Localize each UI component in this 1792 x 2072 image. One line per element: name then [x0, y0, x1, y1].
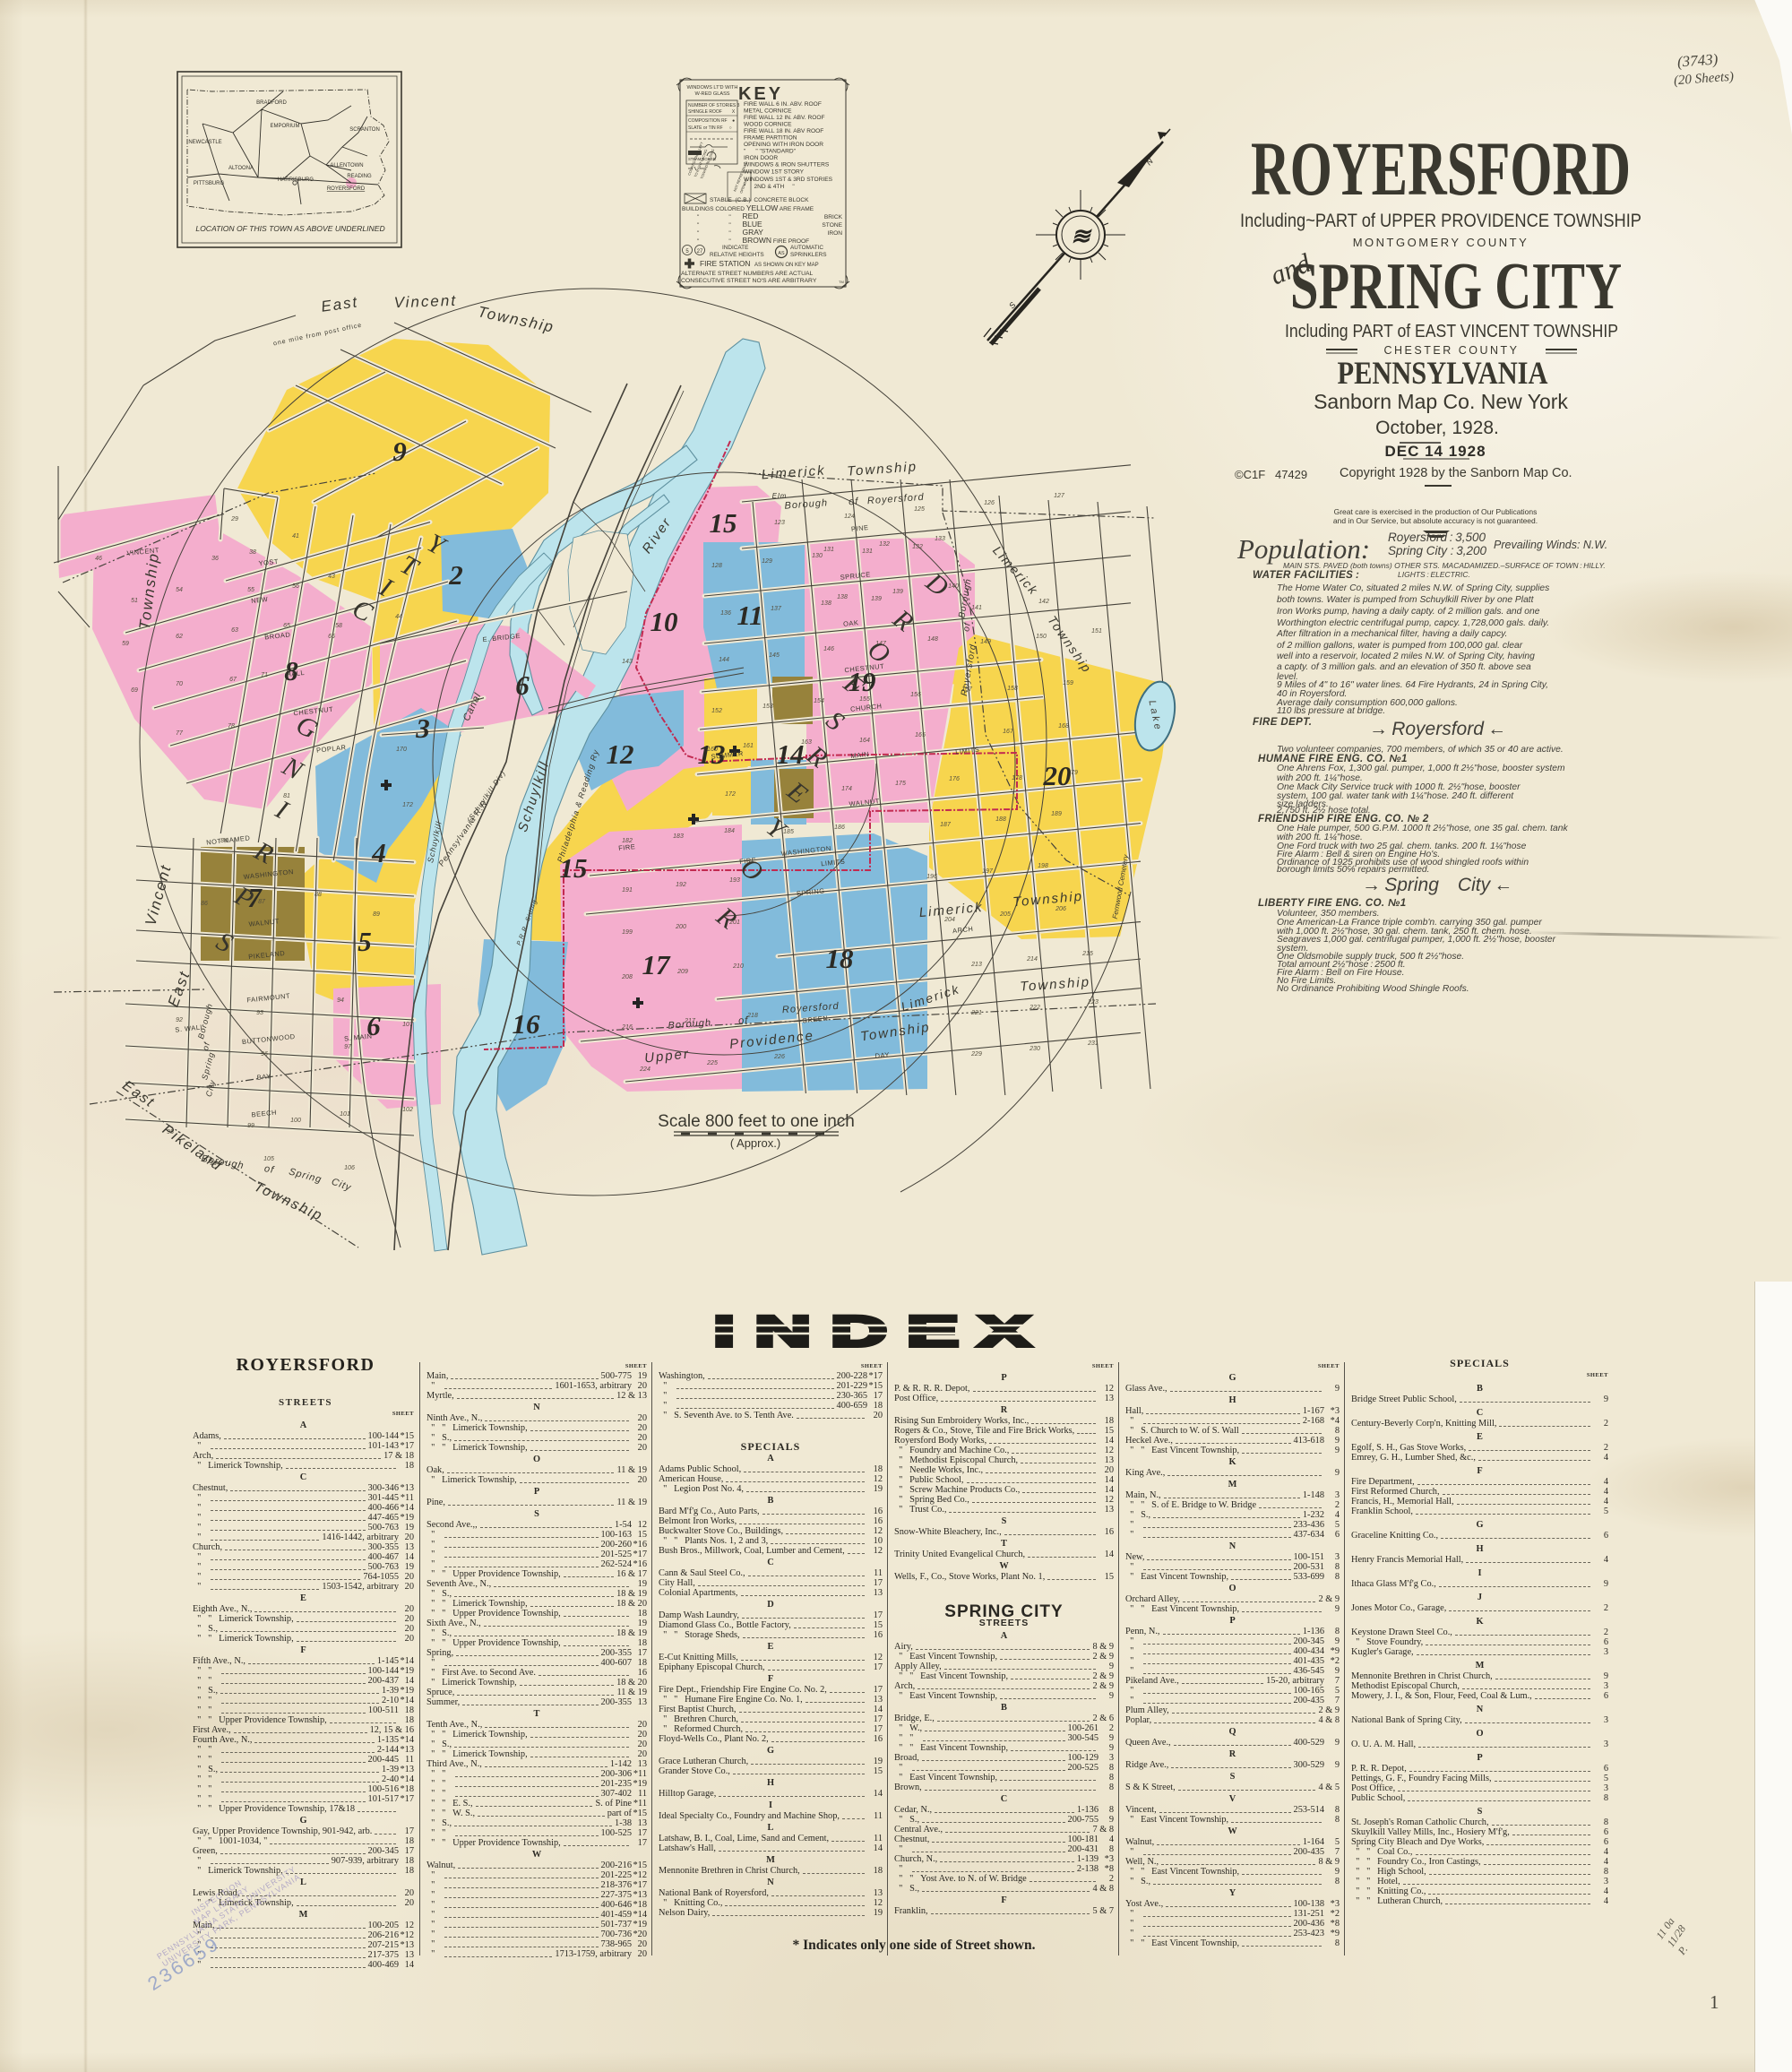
svg-text:of: of	[263, 1163, 275, 1176]
svg-text:63: 63	[231, 627, 238, 634]
svg-text:185: 185	[783, 829, 794, 835]
svg-text:FIRE WALL 12 IN. ABV. ROOF: FIRE WALL 12 IN. ABV. ROOF	[744, 115, 825, 121]
svg-text:of: of	[738, 1015, 749, 1027]
svg-text:44: 44	[395, 614, 402, 620]
svg-text:FIRE WALL 18 IN. ABV ROOF: FIRE WALL 18 IN. ABV ROOF	[744, 128, 823, 134]
svg-text:2: 2	[448, 559, 463, 591]
svg-text:159: 159	[1063, 680, 1073, 686]
svg-text:215: 215	[1081, 951, 1093, 957]
svg-text:66: 66	[328, 634, 335, 640]
svg-text:199: 199	[622, 929, 633, 936]
svg-text:89: 89	[373, 911, 380, 918]
svg-text:131: 131	[862, 548, 873, 555]
svg-text:HARRISBURG: HARRISBURG	[278, 177, 314, 183]
svg-text:51: 51	[131, 598, 138, 604]
svg-text:Limerick: Limerick	[761, 463, 826, 483]
svg-text:223: 223	[1087, 999, 1098, 1006]
svg-text:206: 206	[1055, 906, 1066, 912]
svg-text:15: 15	[710, 507, 737, 539]
svg-text:( Approx.): ( Approx.)	[730, 1136, 780, 1150]
svg-text:230: 230	[1029, 1046, 1040, 1052]
svg-text:69: 69	[131, 687, 138, 694]
svg-text:AUTOMATIC: AUTOMATIC	[790, 245, 823, 251]
svg-text:IRON DOOR: IRON DOOR	[744, 155, 778, 161]
svg-text:and in Our Service, but absolu: and in Our Service, but absolute accurac…	[1333, 516, 1538, 525]
svg-text:WINDOW 1ST STORY: WINDOW 1ST STORY	[744, 169, 805, 176]
svg-text:of: of	[961, 621, 973, 632]
svg-text:FRAME PARTITION: FRAME PARTITION	[744, 135, 797, 142]
svg-text:EMPORIUM: EMPORIUM	[271, 124, 300, 129]
svg-text:INDEX: INDEX	[713, 1314, 1050, 1350]
svg-text:92: 92	[176, 1017, 183, 1023]
svg-text:SLATE or TIN RF ○: SLATE or TIN RF ○	[688, 125, 732, 131]
svg-text:20: 20	[1043, 760, 1072, 791]
svg-text:59: 59	[122, 641, 129, 647]
svg-text:139: 139	[871, 596, 882, 602]
svg-text:54: 54	[176, 587, 183, 593]
svg-text:184: 184	[724, 828, 735, 834]
svg-text:Copyright 1928 by the Sanborn: Copyright 1928 by the Sanborn Map Co.	[1340, 466, 1572, 480]
svg-text:SCRANTON: SCRANTON	[349, 127, 380, 133]
svg-text:133: 133	[935, 536, 945, 542]
svg-text:100: 100	[290, 1118, 301, 1124]
svg-text:16: 16	[513, 1008, 541, 1040]
svg-text:NOT NAMED: NOT NAMED	[206, 833, 251, 846]
svg-text:209: 209	[676, 969, 688, 975]
svg-text:150: 150	[1036, 634, 1047, 640]
svg-text:OPENING WITH IRON DOOR: OPENING WITH IRON DOOR	[744, 142, 823, 148]
svg-text:124: 124	[844, 514, 855, 520]
svg-text:IRON: IRON	[828, 230, 843, 237]
svg-text:SPRINKLERS: SPRINKLERS	[790, 252, 827, 258]
svg-text:158: 158	[1007, 686, 1018, 692]
svg-text:78: 78	[228, 723, 235, 730]
svg-text:SPRING CITY: SPRING CITY	[1290, 250, 1622, 324]
svg-text:107: 107	[402, 1022, 414, 1028]
svg-text:154: 154	[814, 698, 824, 704]
svg-text:Royersford: Royersford	[867, 492, 925, 506]
svg-text:165: 165	[915, 732, 926, 738]
svg-text:222: 222	[1029, 1005, 1040, 1011]
svg-text:77: 77	[176, 730, 184, 737]
svg-text:129: 129	[762, 558, 772, 565]
svg-text:READING: READING	[347, 174, 372, 179]
svg-text:164: 164	[859, 738, 870, 744]
svg-text:221: 221	[970, 1010, 982, 1016]
svg-text:46: 46	[95, 556, 102, 562]
svg-text:October, 1928.: October, 1928.	[1375, 418, 1499, 438]
svg-text:125: 125	[914, 506, 925, 513]
svg-text:Including~PART of UPPER PROVID: Including~PART of UPPER PROVIDENCE TOWNS…	[1240, 211, 1641, 231]
svg-text:Great care is exercised in the: Great care is exercised in the productio…	[1334, 507, 1538, 516]
svg-text:102: 102	[402, 1107, 413, 1113]
svg-text:STABLE (C.B.) CONCRETE BLOCK: STABLE (C.B.) CONCRETE BLOCK	[710, 197, 809, 203]
svg-text:55: 55	[247, 587, 254, 593]
svg-text:WOOD CORNICE: WOOD CORNICE	[744, 122, 792, 128]
svg-text:PENNSYLVANIA: PENNSYLVANIA	[1338, 355, 1548, 391]
svg-text:BEECH: BEECH	[251, 1109, 277, 1119]
svg-text:of: of	[849, 496, 859, 508]
svg-text:88: 88	[314, 892, 322, 898]
svg-text:172: 172	[725, 791, 736, 798]
svg-text:188: 188	[995, 816, 1006, 823]
svg-text:56: 56	[292, 583, 299, 590]
svg-text:101: 101	[340, 1111, 350, 1118]
svg-text:105: 105	[263, 1156, 274, 1162]
svg-text:DAY: DAY	[874, 1050, 890, 1060]
svg-text:106: 106	[344, 1165, 355, 1171]
svg-text:148: 148	[927, 636, 938, 643]
svg-text:156: 156	[910, 692, 921, 698]
svg-text:FAIRMOUNT: FAIRMOUNT	[246, 991, 290, 1004]
svg-text:168: 168	[1058, 723, 1069, 730]
svg-text:231: 231	[1087, 1040, 1098, 1047]
svg-text:186: 186	[834, 824, 845, 831]
svg-text:136: 136	[720, 610, 731, 617]
svg-text:141: 141	[971, 605, 982, 611]
svg-text:City: City	[204, 1079, 218, 1098]
svg-text:145: 145	[769, 652, 780, 659]
svg-text:193: 193	[729, 877, 740, 884]
svg-text:Township: Township	[477, 303, 556, 336]
svg-text:126: 126	[984, 500, 995, 506]
svg-text:213: 213	[970, 962, 982, 968]
svg-text:197: 197	[982, 868, 994, 875]
svg-text:174: 174	[841, 786, 852, 792]
svg-text:142: 142	[1038, 599, 1049, 605]
svg-text:200: 200	[675, 924, 686, 930]
svg-text:17: 17	[642, 949, 672, 980]
svg-text:172: 172	[402, 802, 413, 808]
svg-text:RELATIVE HEIGHTS: RELATIVE HEIGHTS	[710, 252, 764, 258]
svg-text:Township: Township	[252, 1179, 325, 1224]
svg-text:138: 138	[821, 600, 831, 607]
svg-text:189: 189	[1051, 811, 1062, 817]
svg-text:BRICK: BRICK	[824, 214, 843, 220]
svg-text:18: 18	[826, 943, 855, 974]
svg-text:©C1F 47429: ©C1F 47429	[1235, 468, 1307, 481]
svg-text:224: 224	[639, 1066, 650, 1073]
svg-text:AS: AS	[778, 251, 785, 256]
svg-text:191: 191	[622, 887, 633, 894]
svg-text:175: 175	[895, 781, 906, 787]
svg-text:97: 97	[344, 1044, 352, 1050]
svg-text:27: 27	[697, 249, 703, 255]
svg-text:132: 132	[912, 544, 923, 550]
svg-text:INDICATE: INDICATE	[722, 245, 748, 251]
svg-text:PITTSBURG: PITTSBURG	[194, 181, 225, 186]
svg-text:STONE: STONE	[822, 222, 842, 229]
svg-text:214: 214	[1026, 956, 1038, 963]
svg-text:225: 225	[706, 1060, 718, 1066]
svg-text:65: 65	[283, 623, 290, 629]
svg-text:Pikeland: Pikeland	[159, 1122, 225, 1174]
svg-text:153: 153	[762, 704, 773, 710]
svg-text:99: 99	[247, 1123, 254, 1129]
svg-text:Vincent: Vincent	[142, 862, 175, 928]
svg-text:36: 36	[211, 556, 219, 562]
svg-text:139: 139	[892, 589, 903, 595]
svg-text:58: 58	[335, 623, 342, 629]
svg-text:14: 14	[777, 738, 805, 770]
svg-text:East: East	[320, 293, 359, 315]
svg-text:City: City	[330, 1177, 353, 1194]
svg-text:137: 137	[771, 606, 782, 612]
svg-text:187: 187	[940, 822, 952, 828]
svg-text:123: 123	[774, 520, 785, 526]
svg-text:PINE: PINE	[851, 523, 869, 533]
svg-text:10: 10	[650, 606, 678, 637]
svg-text:LOCATION OF THIS TOWN AS ABOVE: LOCATION OF THIS TOWN AS ABOVE UNDERLINE…	[195, 224, 384, 233]
svg-text:WINDOWS 1ST & 3RD STORIES: WINDOWS 1ST & 3RD STORIES	[744, 177, 833, 183]
svg-text:226: 226	[773, 1054, 785, 1060]
svg-text:Limerick: Limerick	[918, 900, 984, 920]
svg-text:NUMBER OF STORIES 3: NUMBER OF STORIES 3	[688, 103, 740, 108]
svg-text:208: 208	[621, 974, 633, 980]
svg-text:ROYERSFORD: ROYERSFORD	[1251, 125, 1631, 212]
svg-text:11: 11	[737, 600, 762, 631]
svg-text:151: 151	[1091, 628, 1102, 635]
svg-text:70: 70	[176, 681, 183, 687]
svg-text:155: 155	[859, 696, 870, 703]
svg-text:71: 71	[261, 672, 268, 678]
svg-text:86: 86	[201, 901, 208, 907]
svg-text:192: 192	[676, 882, 686, 888]
svg-text:one mile from post office: one mile from post office	[272, 323, 362, 348]
svg-text:138: 138	[837, 594, 848, 600]
svg-text:132: 132	[879, 541, 890, 548]
svg-text:12: 12	[607, 738, 634, 770]
svg-text:WINDOWS & IRON SHUTTERS: WINDOWS & IRON SHUTTERS	[744, 162, 830, 168]
svg-text:38: 38	[249, 549, 256, 556]
svg-text:Township: Township	[847, 459, 918, 479]
svg-text:Scale 800 feet to one inch: Scale 800 feet to one inch	[658, 1112, 855, 1131]
svg-text:9: 9	[392, 436, 407, 467]
svg-text:170: 170	[396, 747, 407, 753]
svg-text:130: 130	[812, 553, 823, 559]
svg-text:183: 183	[673, 833, 684, 840]
svg-text:" " BRO: " " BROWN FIRE PROOF	[697, 236, 809, 245]
svg-text:41: 41	[292, 533, 299, 540]
svg-text:4: 4	[371, 837, 386, 868]
svg-text:ALTOONA: ALTOONA	[228, 166, 254, 171]
svg-text:176: 176	[949, 776, 960, 782]
svg-text:SHINGLE ROOF X: SHINGLE ROOF X	[688, 109, 736, 115]
svg-text:143: 143	[622, 659, 633, 665]
svg-text:128: 128	[711, 563, 722, 569]
svg-text:NEWCASTLE: NEWCASTLE	[188, 140, 221, 145]
svg-text:178: 178	[1012, 775, 1022, 781]
svg-text:DEC 14 1928: DEC 14 1928	[1384, 443, 1486, 460]
svg-text:5: 5	[358, 926, 372, 957]
svg-text:Borough: Borough	[201, 1153, 246, 1171]
svg-text:127: 127	[1054, 493, 1065, 499]
svg-text:198: 198	[1038, 863, 1048, 869]
svg-text:43: 43	[328, 574, 335, 580]
svg-text:MONTGOMERY COUNTY: MONTGOMERY COUNTY	[1353, 236, 1529, 249]
svg-text:229: 229	[970, 1051, 982, 1058]
svg-text:Spring: Spring	[200, 1050, 216, 1081]
svg-text:216: 216	[621, 1024, 633, 1031]
svg-text:Sanborn Map Co. New York: Sanborn Map Co. New York	[1314, 390, 1568, 413]
svg-text:131: 131	[823, 547, 834, 553]
svg-text:FIRE WALL 6 IN. ABV. ROOF: FIRE WALL 6 IN. ABV. ROOF	[744, 101, 822, 108]
svg-text:3: 3	[415, 712, 430, 744]
svg-text:96: 96	[261, 1051, 268, 1058]
svg-text:" " "STANDARD": " " "STANDARD"	[744, 149, 797, 155]
svg-text:" 2ND & 4TH ": " 2ND & 4TH "	[744, 184, 795, 190]
svg-text:Limerick: Limerick	[990, 543, 1041, 598]
svg-text:144: 144	[719, 657, 729, 663]
svg-text:OAK: OAK	[843, 618, 859, 628]
svg-text:BRADFORD: BRADFORD	[256, 100, 287, 106]
svg-text:5: 5	[685, 249, 689, 255]
svg-text:Including PART of EAST VINCENT: Including PART of EAST VINCENT TOWNSHIP	[1285, 322, 1618, 341]
svg-text:152: 152	[711, 708, 722, 714]
svg-text:6: 6	[515, 669, 530, 701]
svg-text:(Schuylkill Div): (Schuylkill Div)	[466, 769, 508, 824]
svg-text:149: 149	[980, 639, 991, 645]
svg-text:29: 29	[230, 516, 238, 522]
svg-text:196: 196	[926, 874, 937, 880]
svg-text:161: 161	[743, 743, 754, 749]
svg-text:ALLENTOWN: ALLENTOWN	[330, 163, 363, 168]
svg-text:167: 167	[1003, 729, 1014, 735]
svg-text:METAL CORNICE: METAL CORNICE	[744, 108, 792, 115]
svg-text:BUTTONWOOD: BUTTONWOOD	[242, 1032, 297, 1046]
svg-text:205: 205	[999, 911, 1011, 918]
svg-text:COMPOSITION RF ●: COMPOSITION RF ●	[688, 118, 735, 124]
svg-text:94: 94	[337, 997, 344, 1004]
svg-text:ROYERSFORD: ROYERSFORD	[327, 186, 366, 192]
svg-text:Vincent: Vincent	[393, 292, 457, 311]
svg-text:Spring: Spring	[288, 1166, 323, 1185]
svg-text:WINDOWS LT'D WITH: WINDOWS LT'D WITH	[687, 85, 738, 91]
svg-text:67: 67	[229, 677, 237, 683]
svg-text:I: I	[270, 794, 294, 825]
svg-text:W-RED GLASS: W-RED GLASS	[694, 91, 729, 97]
svg-text:ARCH: ARCH	[952, 925, 974, 935]
svg-text:146: 146	[823, 646, 834, 652]
svg-text:Township: Township	[1020, 974, 1091, 994]
svg-text:Elm: Elm	[772, 492, 788, 500]
svg-text:93: 93	[256, 1010, 263, 1016]
svg-text:210: 210	[732, 963, 744, 970]
svg-text:Borough: Borough	[784, 497, 828, 511]
svg-text:62: 62	[176, 634, 183, 640]
svg-text:BAY: BAY	[256, 1072, 271, 1082]
svg-text:≋: ≋	[1071, 222, 1092, 249]
